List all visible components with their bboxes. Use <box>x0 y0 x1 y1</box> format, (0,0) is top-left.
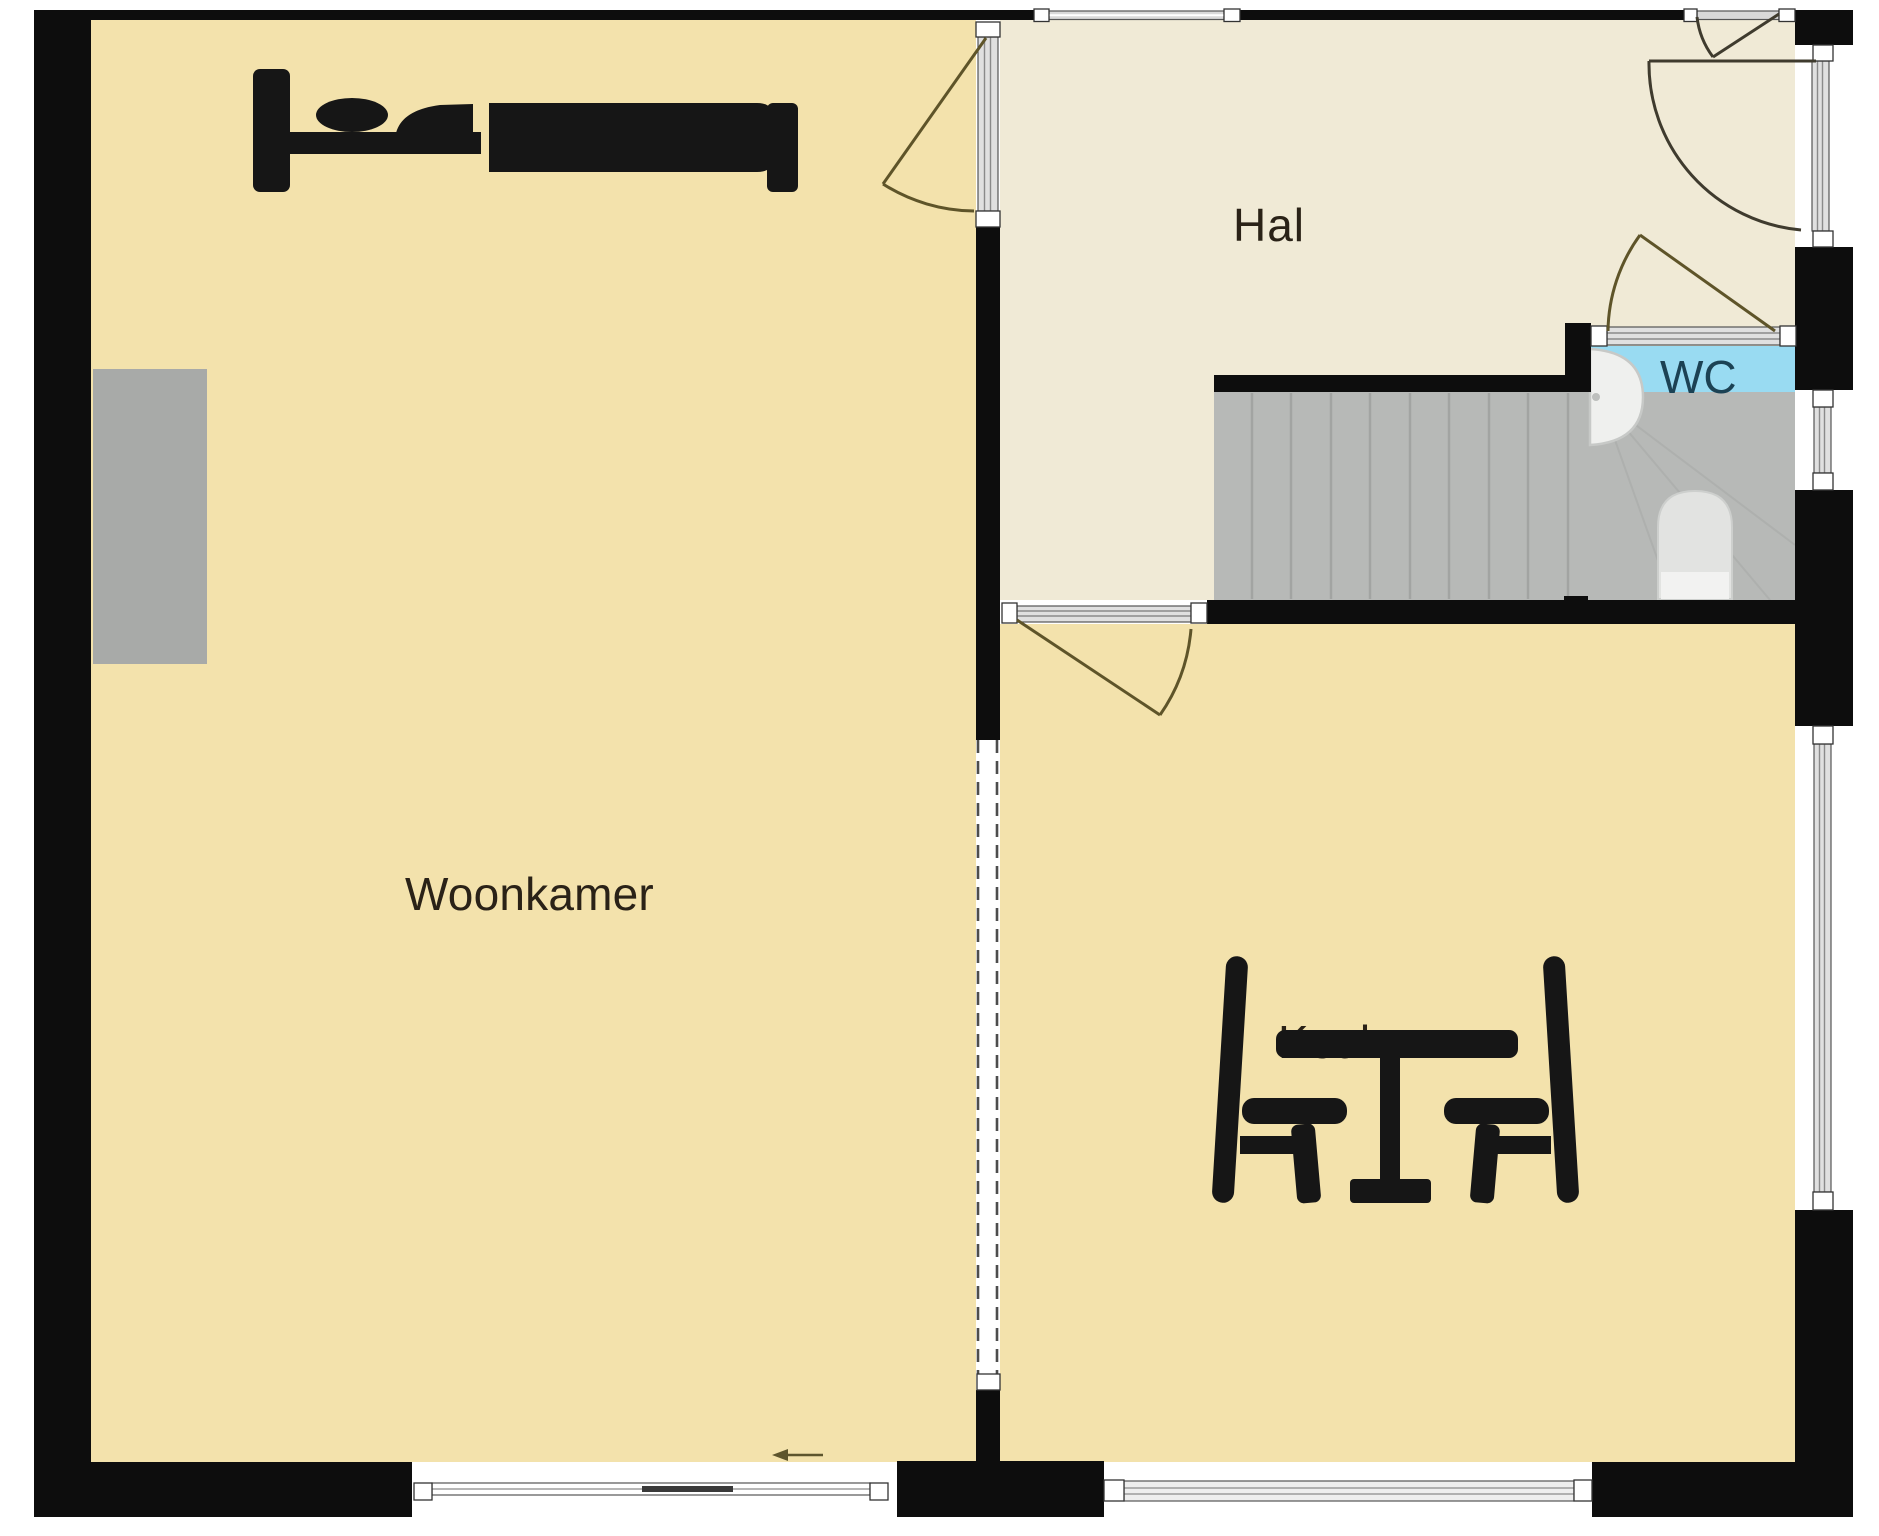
svg-text:Hal: Hal <box>1233 199 1305 251</box>
svg-text:Woonkamer: Woonkamer <box>405 868 654 920</box>
svg-text:WC: WC <box>1660 351 1737 403</box>
